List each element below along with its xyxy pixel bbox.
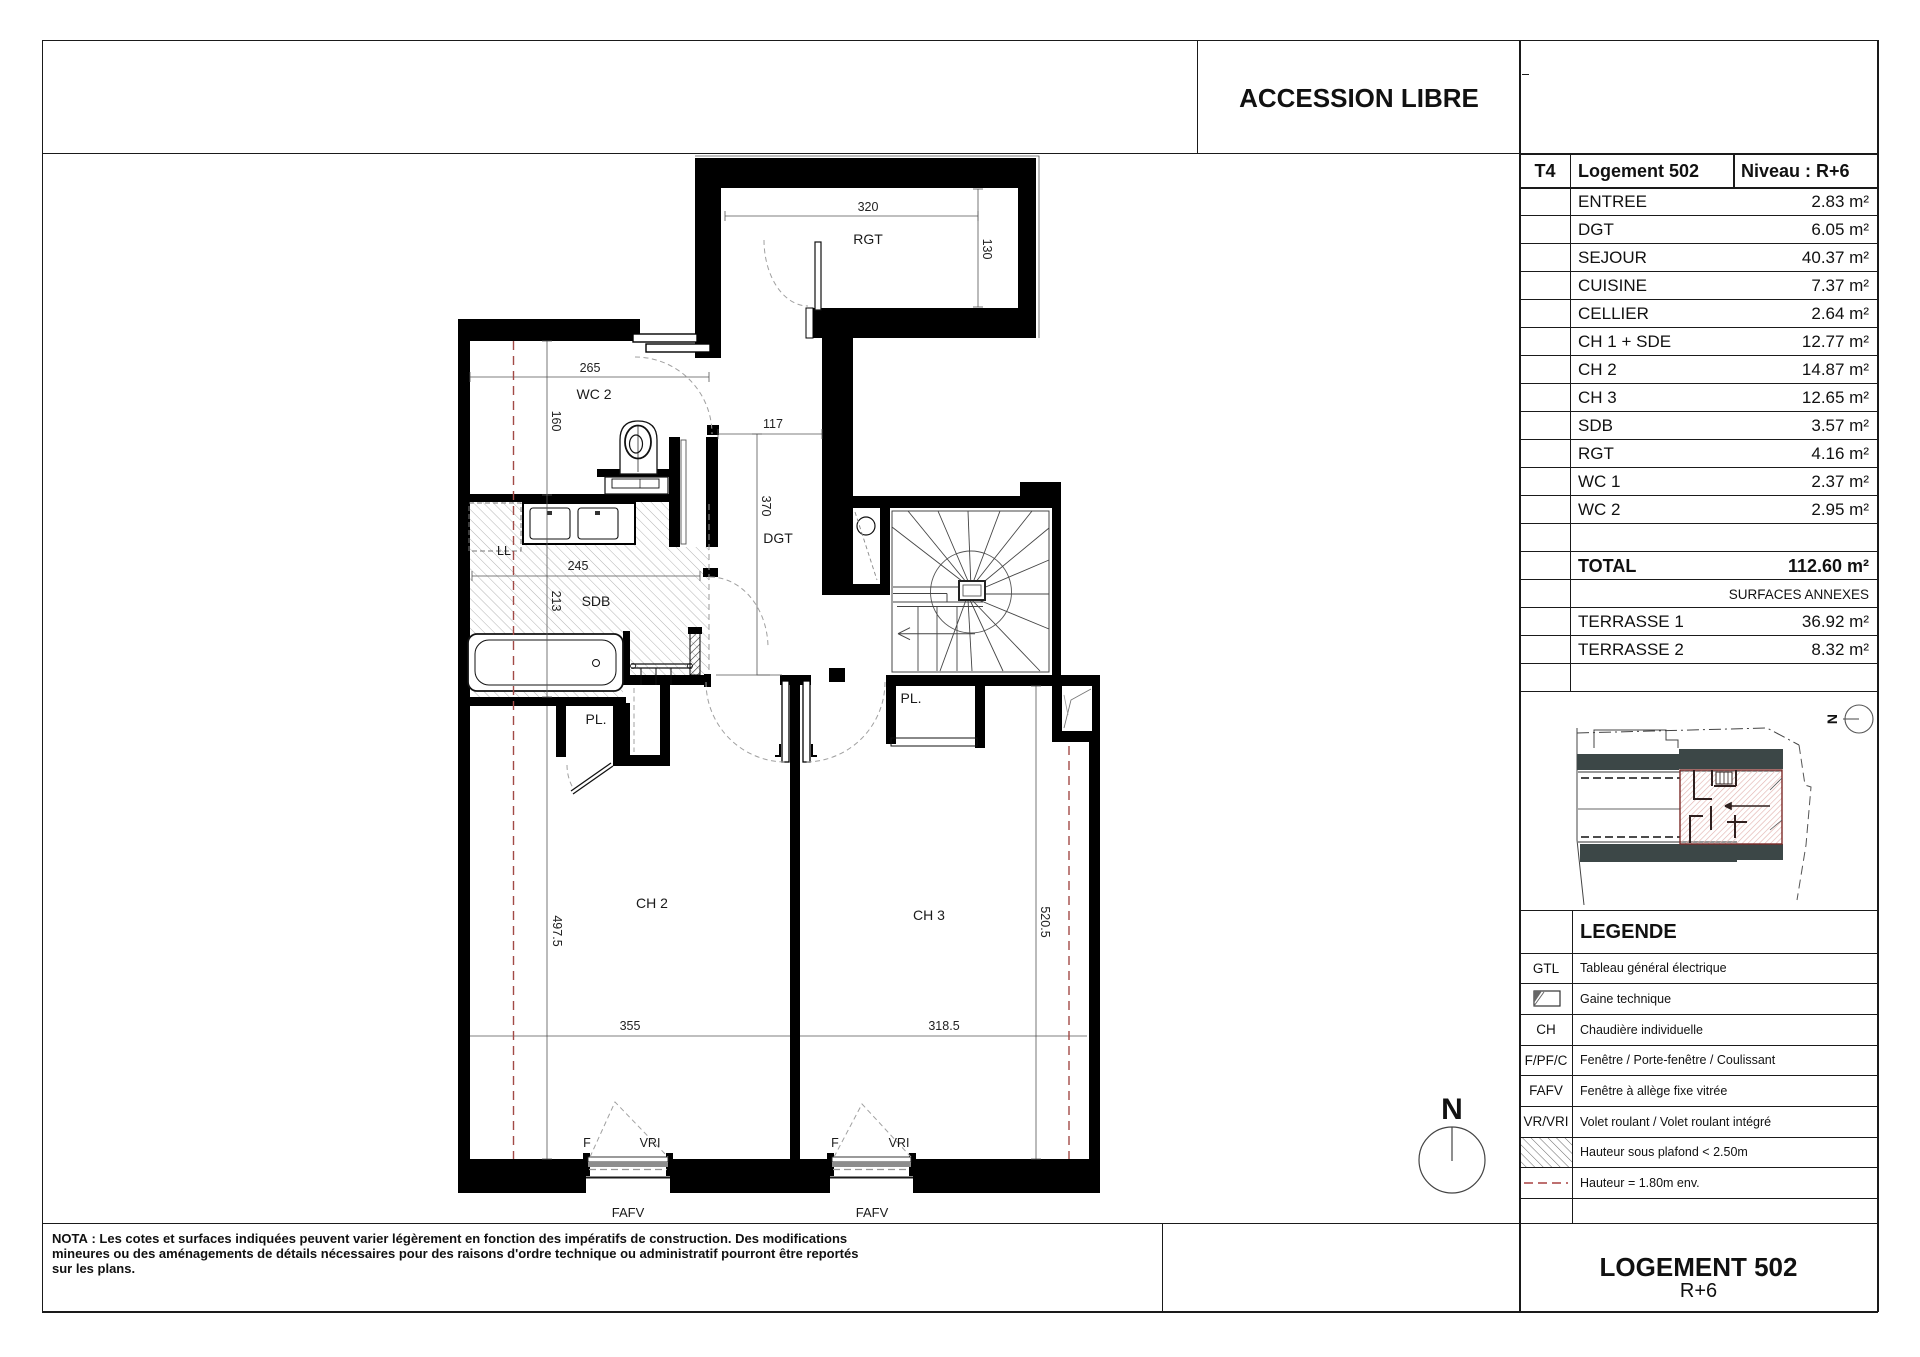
svg-text:N: N	[1824, 714, 1840, 724]
svg-text:PL.: PL.	[900, 690, 921, 706]
svg-text:117: 117	[763, 417, 783, 431]
svg-text:130: 130	[980, 239, 994, 260]
svg-text:320: 320	[858, 200, 879, 214]
svg-text:VRI: VRI	[889, 1136, 910, 1150]
svg-text:FAFV: FAFV	[856, 1205, 889, 1220]
svg-text:WC 2: WC 2	[577, 386, 612, 402]
svg-text:RGT: RGT	[853, 231, 883, 247]
svg-text:DGT: DGT	[763, 530, 793, 546]
svg-text:PL.: PL.	[585, 711, 606, 727]
svg-text:318.5: 318.5	[928, 1019, 959, 1033]
svg-text:FAFV: FAFV	[612, 1205, 645, 1220]
svg-text:520.5: 520.5	[1038, 906, 1052, 937]
svg-text:497.5: 497.5	[550, 915, 564, 946]
svg-text:SDB: SDB	[582, 593, 611, 609]
svg-text:370: 370	[759, 496, 773, 517]
svg-text:VRI: VRI	[640, 1136, 661, 1150]
svg-text:F: F	[831, 1136, 839, 1150]
svg-text:CH 3: CH 3	[913, 907, 945, 923]
svg-text:CH 2: CH 2	[636, 895, 668, 911]
svg-text:F: F	[583, 1136, 591, 1150]
svg-text:LL: LL	[497, 544, 511, 558]
svg-text:160: 160	[549, 411, 563, 432]
svg-text:245: 245	[568, 559, 589, 573]
svg-text:213: 213	[549, 591, 563, 612]
svg-text:N: N	[1441, 1093, 1463, 1126]
svg-text:265: 265	[580, 361, 601, 375]
svg-text:355: 355	[620, 1019, 641, 1033]
